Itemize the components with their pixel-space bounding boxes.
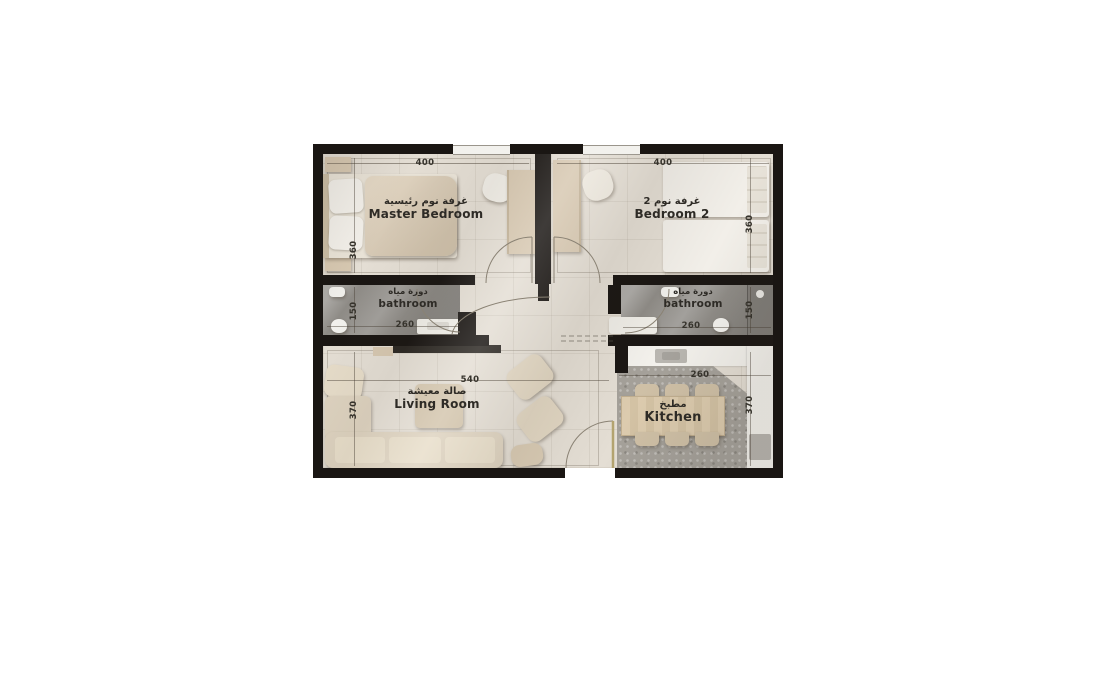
dim-bedroom2-width: 400 [654,158,673,168]
living-room-label-ar: صالة معيشة [394,386,479,398]
bathroom-right-toilet [713,318,729,332]
dim-bathright-height: 150 [745,301,755,320]
bathroom-right-label-en: bathroom [663,298,722,310]
tv-console [373,347,393,356]
kitchen-label-en: Kitchen [644,411,701,426]
wall-under-master [323,275,475,285]
dim-kitchen-height: 370 [745,396,755,415]
dim-bedroom2-height: 360 [745,215,755,234]
dim-kitchen-width: 260 [691,370,710,380]
dimline-bathleft-width [327,326,460,327]
wall-bathroom-right-stub [608,285,621,314]
wall-above-living [323,335,489,346]
bathroom-left-label-ar: دورة مياه [378,288,437,298]
master-nightstand-top [325,157,351,172]
wall-right [773,144,783,478]
page: 400 400 360 360 150 260 150 260 540 370 … [0,0,1096,693]
dim-bathleft-width: 260 [396,320,415,330]
bathroom-left-label: دورة مياه bathroom [378,288,437,310]
wall-left [313,144,323,478]
sofa-cushion-3 [445,437,495,463]
master-bedroom-label: غرفة نوم رئيسية Master Bedroom [369,196,484,221]
kitchen-label: مطبخ Kitchen [644,399,701,425]
floor-plan: 400 400 360 360 150 260 150 260 540 370 … [313,144,783,478]
window-bedroom2 [583,145,640,155]
dim-bathleft-height: 150 [349,302,359,321]
dim-master-width: 400 [416,158,435,168]
bedroom2-label: غرفة نوم 2 Bedroom 2 [634,196,709,221]
wall-bottom-2 [615,468,783,478]
bathroom-right-shower-head [756,290,764,298]
master-bedroom-label-en: Master Bedroom [369,208,484,222]
wall-kitchen-left-stub [615,335,628,373]
wall-bottom-1 [313,468,565,478]
living-room-label: صالة معيشة Living Room [394,386,479,411]
kitchen-sink-basin [662,352,680,360]
wall-under-bedroom2 [613,275,773,285]
dim-bathright-width: 260 [682,321,701,331]
master-bed-pillow-1 [328,178,364,214]
wall-top-3 [640,144,783,154]
kitchen-label-ar: مطبخ [644,399,701,411]
living-room-label-en: Living Room [394,398,479,412]
dim-master-height: 360 [349,241,359,260]
wall-top-1 [313,144,453,154]
tv-unit [393,345,501,353]
master-desk [507,170,535,254]
sofa-cushion-1 [335,437,385,463]
sofa-cushion-2 [389,437,441,463]
bedroom2-label-en: Bedroom 2 [634,208,709,222]
dim-living-width: 540 [461,375,480,385]
bathroom-left-faucet [329,287,345,297]
wall-bedroom-divider-stub [538,284,549,301]
kitchen-chair-bottom-2 [665,432,689,446]
wall-top-2 [510,144,583,154]
kitchen-chair-bottom-1 [635,432,659,446]
wall-bedroom-divider [535,154,551,284]
kitchen-appliance [749,434,771,460]
bathroom-left-label-en: bathroom [378,298,437,310]
wall-bathroom-left-stub [458,312,476,335]
kitchen-chair-bottom-3 [695,432,719,446]
window-master-bedroom [453,145,510,155]
dim-living-height: 370 [349,401,359,420]
bathroom-right-label: دورة مياه bathroom [663,288,722,310]
master-bedroom-label-ar: غرفة نوم رئيسية [369,196,484,208]
bedroom2-desk [553,160,581,252]
wall-above-kitchen [608,335,773,346]
bedroom2-label-ar: غرفة نوم 2 [634,196,709,208]
bathroom-right-label-ar: دورة مياه [663,288,722,298]
master-nightstand-bottom [325,256,351,271]
living-armchair-topleft [323,364,365,401]
bathroom-right-bathtub [609,317,657,334]
